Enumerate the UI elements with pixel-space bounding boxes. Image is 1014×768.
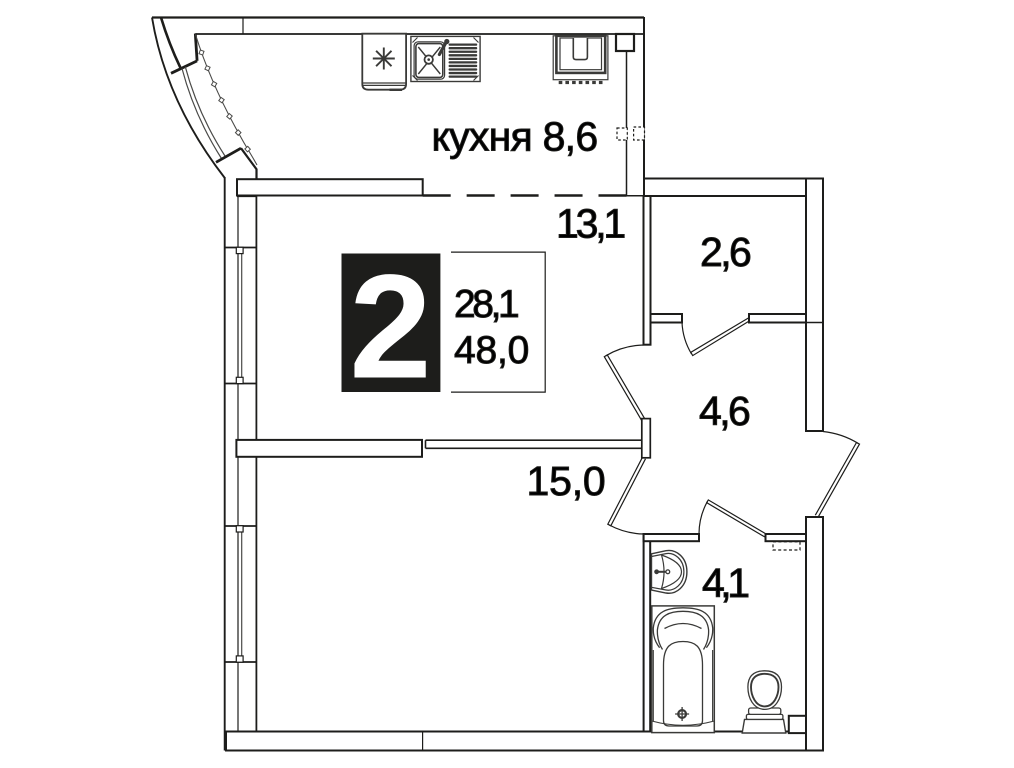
svg-text:кухня 8,6: кухня 8,6 bbox=[432, 114, 598, 160]
svg-text:4,1: 4,1 bbox=[702, 560, 748, 606]
svg-text:48,0: 48,0 bbox=[454, 329, 529, 372]
svg-text:2,6: 2,6 bbox=[700, 229, 750, 275]
svg-text:28,1: 28,1 bbox=[454, 283, 518, 326]
svg-text:13,1: 13,1 bbox=[556, 201, 624, 247]
svg-text:15,0: 15,0 bbox=[527, 458, 606, 504]
svg-text:4,6: 4,6 bbox=[699, 388, 749, 434]
svg-text:2: 2 bbox=[349, 245, 431, 410]
